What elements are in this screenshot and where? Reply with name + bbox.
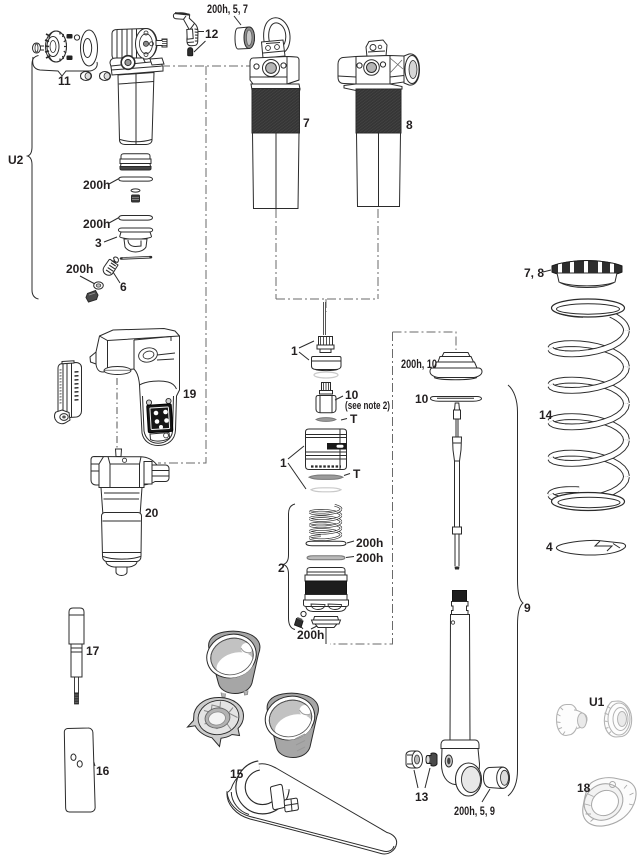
svg-text:U2: U2 [8, 153, 24, 167]
svg-text:11: 11 [58, 74, 71, 88]
svg-text:200h: 200h [66, 262, 93, 276]
svg-text:1: 1 [291, 344, 298, 358]
svg-text:1: 1 [280, 456, 287, 470]
svg-text:7, 8: 7, 8 [524, 266, 544, 280]
svg-text:7: 7 [303, 116, 310, 130]
svg-text:12: 12 [205, 27, 219, 41]
svg-text:200h: 200h [83, 217, 110, 231]
svg-text:19: 19 [183, 387, 197, 401]
svg-text:13: 13 [415, 790, 429, 804]
svg-text:T: T [350, 412, 358, 426]
svg-text:17: 17 [86, 644, 100, 658]
svg-text:200h: 200h [356, 551, 383, 565]
svg-text:200h, 10: 200h, 10 [401, 357, 437, 371]
svg-text:200h: 200h [83, 178, 110, 192]
svg-text:16: 16 [96, 764, 110, 778]
svg-text:10: 10 [415, 392, 429, 406]
svg-text:T: T [353, 467, 361, 481]
svg-text:U1: U1 [589, 695, 605, 709]
svg-text:2: 2 [278, 561, 285, 575]
svg-text:3: 3 [95, 236, 102, 250]
svg-text:200h, 5, 7: 200h, 5, 7 [207, 2, 248, 16]
svg-text:200h, 5, 9: 200h, 5, 9 [454, 804, 495, 818]
svg-text:9: 9 [524, 601, 531, 615]
svg-text:200h: 200h [356, 536, 383, 550]
svg-text:18: 18 [577, 781, 591, 795]
svg-text:8: 8 [406, 118, 413, 132]
svg-text:6: 6 [120, 280, 127, 294]
svg-text:20: 20 [145, 506, 159, 520]
svg-text:200h: 200h [297, 628, 324, 642]
svg-text:4: 4 [546, 540, 553, 554]
svg-text:15: 15 [230, 767, 244, 781]
svg-text:14: 14 [539, 408, 553, 422]
svg-text:(see note 2): (see note 2) [345, 400, 390, 412]
